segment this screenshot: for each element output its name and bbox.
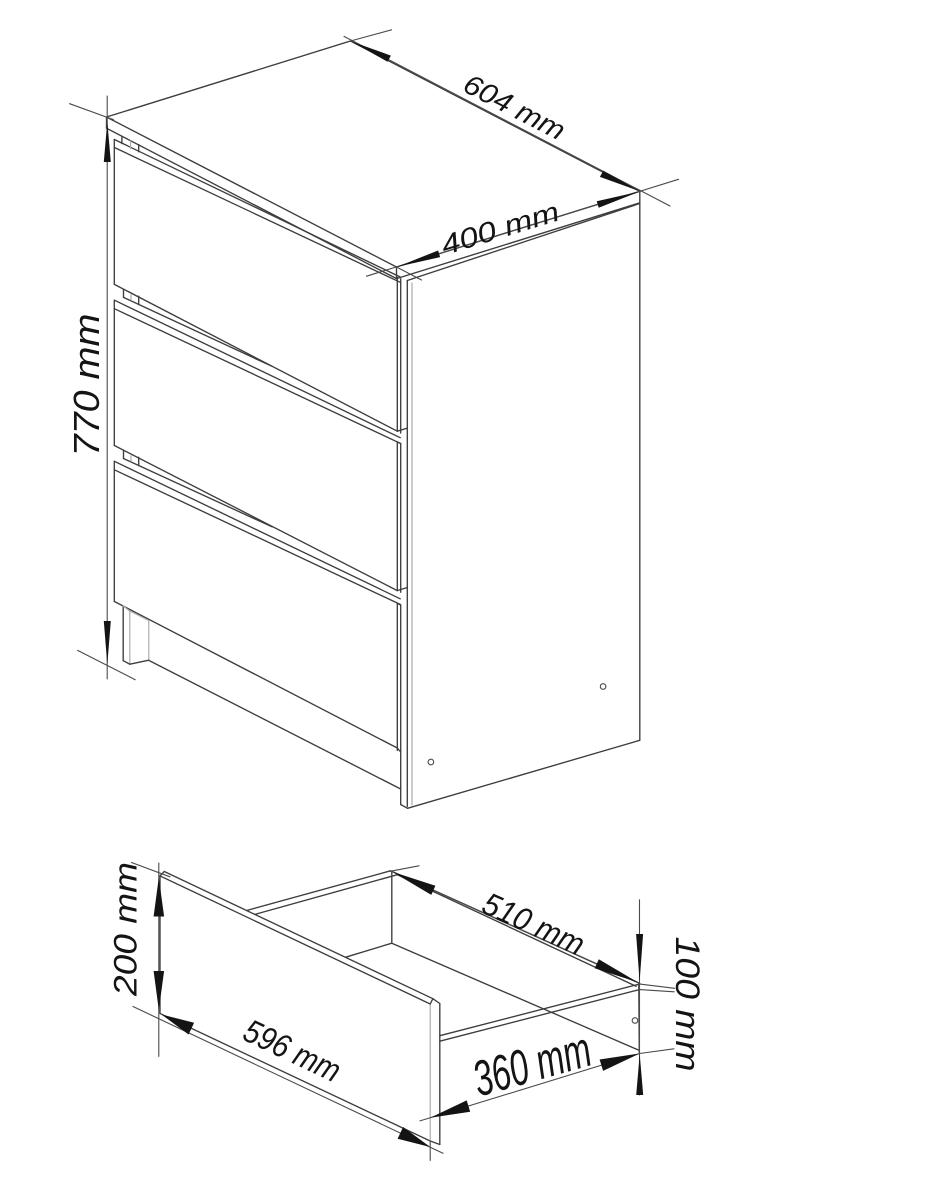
svg-text:360 mm: 360 mm <box>467 1021 598 1107</box>
svg-text:200 mm: 200 mm <box>108 862 144 997</box>
svg-text:596 mm: 596 mm <box>238 1012 347 1089</box>
svg-text:100 mm: 100 mm <box>668 937 706 1072</box>
svg-text:770 mm: 770 mm <box>66 314 107 457</box>
svg-text:604 mm: 604 mm <box>458 68 570 146</box>
svg-text:400 mm: 400 mm <box>437 196 563 261</box>
svg-text:510 mm: 510 mm <box>477 885 590 962</box>
